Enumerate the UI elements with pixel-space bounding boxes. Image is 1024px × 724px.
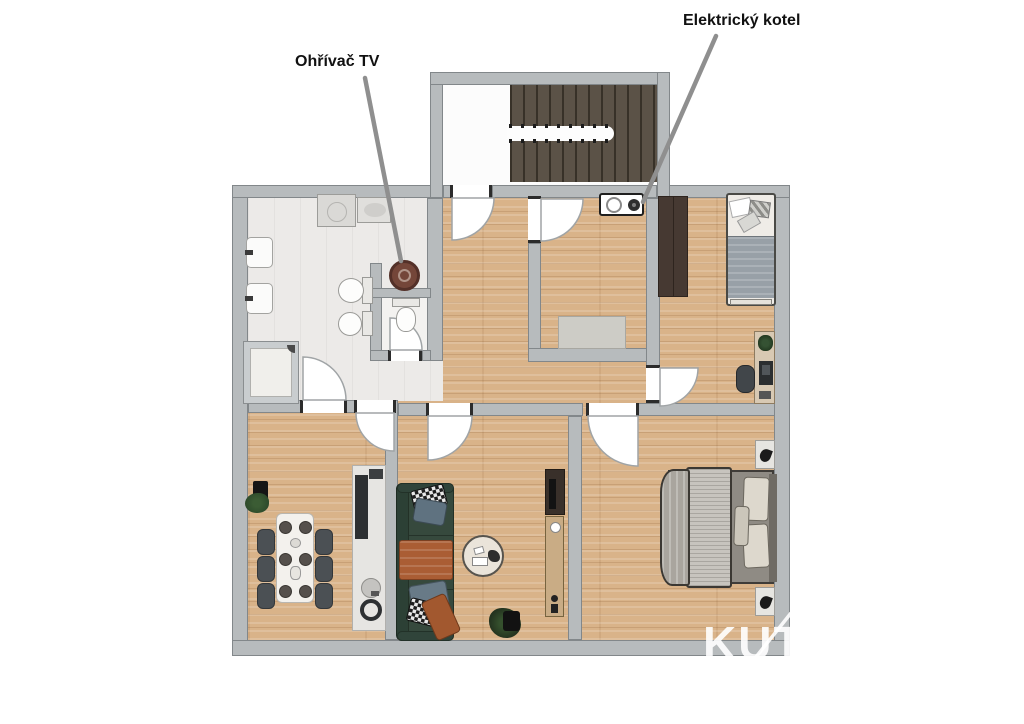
faucet xyxy=(371,591,379,596)
centerpiece xyxy=(290,538,301,548)
tv-cabinet xyxy=(545,469,565,515)
throw-blanket xyxy=(399,540,453,580)
wall-hall-right-3 xyxy=(638,403,775,416)
desk xyxy=(754,331,775,404)
floor-plan: Ohřívač TV Elektrický kotel KUT xyxy=(0,0,1024,724)
door-frame xyxy=(489,185,492,198)
dining-chair xyxy=(257,556,275,582)
doorway-bathroom xyxy=(303,400,346,413)
oven xyxy=(355,475,368,539)
door-frame xyxy=(470,403,473,416)
doorway-storage xyxy=(528,199,541,241)
coffee-table xyxy=(462,535,504,577)
doorway-bedroom1 xyxy=(646,368,660,401)
place-setting xyxy=(279,585,292,598)
boiler-label: Elektrický kotel xyxy=(683,12,800,30)
dryer xyxy=(357,197,391,223)
wall-wc-bottom-right xyxy=(422,350,431,361)
desk-chair xyxy=(736,365,755,393)
bed-foot xyxy=(730,299,772,305)
door-frame xyxy=(354,400,357,413)
watermark-text: KUT xyxy=(703,620,804,658)
place-setting xyxy=(279,521,292,534)
door-frame xyxy=(646,400,660,403)
table-item xyxy=(473,546,484,555)
dryer-door xyxy=(364,203,386,217)
single-bed xyxy=(726,193,776,306)
plant xyxy=(245,493,269,513)
door-frame xyxy=(388,350,391,361)
door-frame xyxy=(426,403,429,416)
pillow-small xyxy=(733,506,749,546)
dining-chair xyxy=(315,556,333,582)
wc-toilet-tank xyxy=(392,298,420,307)
laptop-screen xyxy=(762,365,770,375)
toilet xyxy=(338,275,376,306)
desk-plant xyxy=(758,335,773,351)
shower-tray xyxy=(250,348,292,397)
wall-hall-right-2 xyxy=(472,403,583,416)
sink xyxy=(246,283,273,314)
tv-screen xyxy=(549,479,556,509)
door-frame xyxy=(586,403,589,416)
water-heater xyxy=(389,260,420,291)
wall-wc-bottom-left xyxy=(370,350,390,361)
doorway-dining xyxy=(356,400,394,413)
bidet-tank xyxy=(362,311,373,336)
watermark-clip: KUT xyxy=(695,608,825,658)
dining-chair xyxy=(315,583,333,609)
sideboard-bowl xyxy=(550,522,561,533)
tray xyxy=(472,557,488,566)
handrail-balusters-top xyxy=(509,124,609,128)
sofa xyxy=(396,483,458,641)
door-frame xyxy=(300,400,303,413)
doorway-stairs xyxy=(452,185,490,198)
boiler-dial xyxy=(606,197,622,213)
kitchen-counter xyxy=(352,465,386,631)
double-bed xyxy=(658,466,776,588)
door-frame xyxy=(344,400,347,413)
faucet xyxy=(245,296,253,301)
boiler-knob xyxy=(628,199,640,211)
nightstand xyxy=(755,440,775,469)
wall-bathroom-right xyxy=(427,198,443,361)
dining-chair xyxy=(315,529,333,555)
door-frame xyxy=(528,240,541,243)
place-setting xyxy=(299,553,312,566)
wardrobe xyxy=(658,196,688,297)
shower xyxy=(243,341,299,404)
wall-storage-bottom xyxy=(528,348,659,362)
storage-cabinet xyxy=(558,316,626,349)
washer-drum xyxy=(327,202,347,222)
place-setting xyxy=(299,521,312,534)
dining-chair xyxy=(257,529,275,555)
sofa-seam xyxy=(409,535,453,536)
bidet xyxy=(338,309,376,338)
dining-chair xyxy=(257,583,275,609)
wall-storage-left xyxy=(528,243,541,360)
place-setting xyxy=(299,585,312,598)
water-heater-cap xyxy=(398,269,411,282)
lamp-icon xyxy=(758,448,773,464)
toilet-bowl xyxy=(338,278,364,303)
sink xyxy=(246,237,273,268)
stair-handrail xyxy=(507,126,614,141)
doorway-wc xyxy=(390,350,420,361)
wall-stair-right xyxy=(657,72,670,198)
faucet xyxy=(245,250,253,255)
duvet xyxy=(728,236,774,298)
wc-toilet-bowl xyxy=(396,307,416,332)
handrail-balusters-bottom xyxy=(509,139,609,143)
bidet-bowl xyxy=(338,312,362,336)
cooktop-burner xyxy=(360,599,382,621)
washing-machine xyxy=(317,194,356,227)
doorway-living xyxy=(428,403,472,416)
door-frame xyxy=(450,185,453,198)
wall-living-bedroom xyxy=(568,416,582,640)
desk-item xyxy=(759,391,771,399)
door-frame xyxy=(636,403,639,416)
laptop xyxy=(759,361,773,385)
duvet-fold xyxy=(660,469,690,586)
door-frame xyxy=(419,350,422,361)
wall-stair-left xyxy=(430,72,443,198)
place-setting xyxy=(279,553,292,566)
wall-stair-top xyxy=(430,72,670,85)
doorway-bedroom2 xyxy=(588,403,638,416)
electric-boiler xyxy=(599,193,644,216)
door-frame xyxy=(528,196,541,199)
wardrobe-divider xyxy=(673,197,674,296)
sideboard xyxy=(545,516,564,617)
sideboard-item xyxy=(551,604,558,613)
sideboard-item xyxy=(551,595,558,602)
plant-pot xyxy=(503,611,520,631)
dining-table xyxy=(276,513,314,603)
door-frame xyxy=(646,365,660,368)
wall-hall-right-1 xyxy=(398,403,428,416)
wall-outer-right xyxy=(774,185,790,656)
heater-label: Ohřívač TV xyxy=(295,53,379,71)
door-frame xyxy=(393,400,396,413)
duvet xyxy=(686,467,732,588)
boiler-knob-dot xyxy=(632,203,636,207)
centerpiece xyxy=(290,566,301,580)
headboard xyxy=(769,474,777,582)
table-plant-icon xyxy=(488,550,500,562)
counter-item xyxy=(369,469,383,479)
wc-toilet xyxy=(392,298,420,334)
